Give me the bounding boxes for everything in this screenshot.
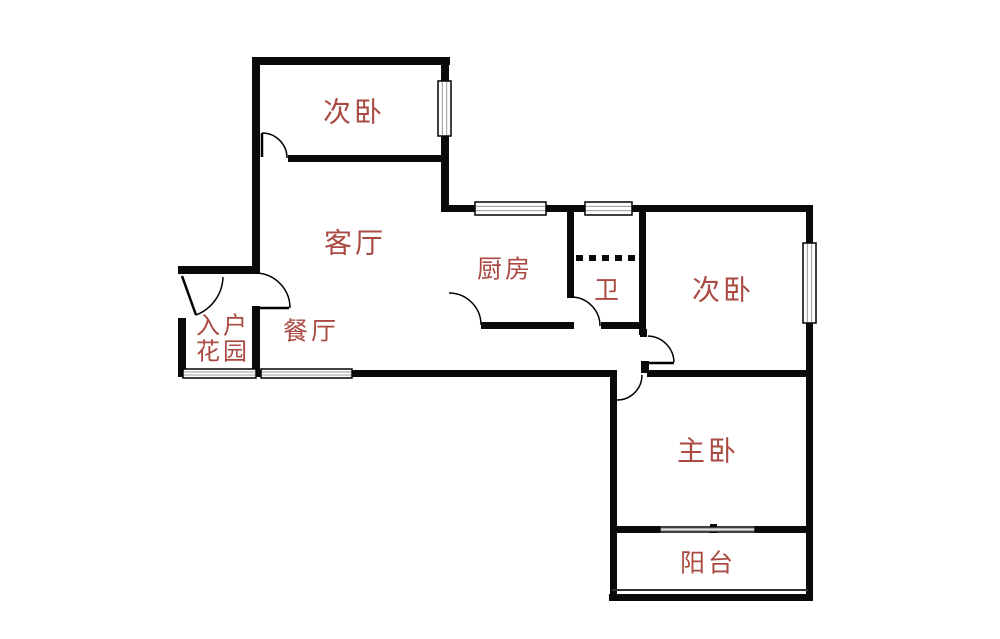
- window: [585, 202, 632, 215]
- wall: [481, 322, 574, 329]
- wall: [639, 212, 646, 335]
- wall: [178, 266, 256, 274]
- room-label-balcony: 阳台: [680, 549, 736, 577]
- room-label-bedroom-top: 次卧: [323, 98, 385, 129]
- window: [475, 202, 546, 215]
- window: [261, 369, 352, 378]
- window: [660, 527, 755, 532]
- door-swing-arc: [617, 375, 642, 400]
- floor-plan-drawing: [0, 0, 1000, 639]
- floor-plan: 次卧 客厅 厨房 卫 次卧 入户 花园 餐厅 主卧 阳台: [0, 0, 1000, 639]
- wall: [252, 57, 260, 274]
- wall: [755, 526, 813, 533]
- wall: [610, 370, 617, 601]
- door-swing-arc: [196, 277, 223, 315]
- window: [183, 369, 256, 378]
- wall: [601, 322, 646, 329]
- room-label-bathroom: 卫: [594, 276, 622, 304]
- room-label-kitchen: 厨房: [477, 255, 533, 283]
- door-swing-arc: [262, 133, 287, 158]
- wall: [610, 526, 660, 533]
- wall: [567, 212, 574, 298]
- wall: [640, 329, 647, 337]
- window: [438, 81, 451, 136]
- door-swing-arc: [256, 273, 290, 308]
- wall: [252, 306, 260, 377]
- door-leaf: [182, 276, 196, 315]
- wall: [609, 594, 813, 601]
- wall: [252, 57, 450, 65]
- door-swing-arc: [449, 293, 481, 325]
- room-label-entry-garden: 入户 花园: [196, 313, 250, 366]
- wall: [178, 318, 186, 377]
- wall: [288, 155, 448, 162]
- room-label-master-bedroom: 主卧: [677, 437, 739, 468]
- door-swing-arc: [648, 336, 674, 362]
- room-label-living-room: 客厅: [324, 229, 386, 260]
- room-label-dining-room: 餐厅: [283, 317, 339, 345]
- room-label-bedroom-right: 次卧: [692, 276, 754, 307]
- wall: [647, 370, 813, 377]
- window: [803, 243, 816, 323]
